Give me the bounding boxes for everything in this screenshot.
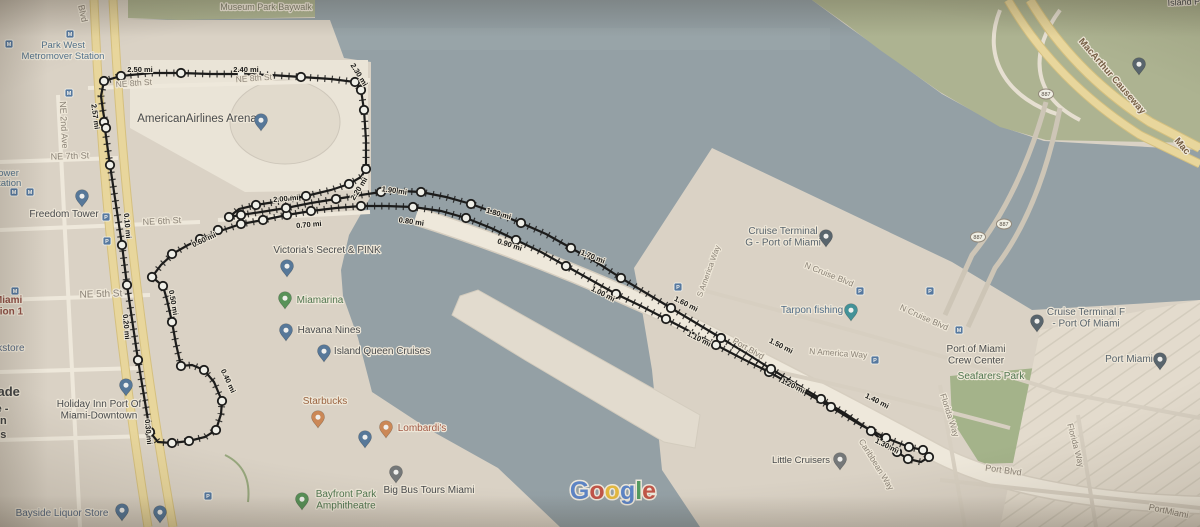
route-waypoint [123, 281, 131, 289]
route-waypoint [867, 427, 875, 435]
route-waypoint [332, 195, 340, 203]
route-waypoint [817, 395, 825, 403]
metromover-station-icon: M [11, 287, 19, 295]
route-waypoint [517, 219, 525, 227]
parking-icon-glyph: P [928, 289, 932, 295]
street-label: NE 6th St [142, 215, 181, 227]
route-waypoint [467, 200, 475, 208]
tarpon-fishing-pin-dot [849, 308, 854, 313]
route-waypoint [225, 213, 233, 221]
route-waypoint [252, 201, 260, 209]
place-label: Cruise TerminalG - Port of Miami [745, 226, 821, 249]
bayside-liquor-pin-dot [120, 508, 125, 513]
place-label: Big Bus Tours Miami [384, 485, 475, 496]
place-label: us [0, 429, 6, 441]
map-canvas[interactable]: MMMMMMPPPPPPPM 887887887 Museum Park Bay… [0, 0, 1200, 527]
route-waypoint [302, 192, 310, 200]
crew-center-transit-icon: M [955, 326, 963, 334]
route-waypoint [159, 282, 167, 290]
parking-icon: P [204, 492, 212, 500]
route-waypoint [148, 273, 156, 281]
metromover-station-icon-glyph: M [12, 190, 17, 196]
route-waypoint [218, 397, 226, 405]
metromover-station-icon-glyph: M [28, 190, 33, 196]
parking-icon: P [926, 287, 934, 295]
route-waypoint [904, 455, 912, 463]
route-waypoint [118, 241, 126, 249]
poi-pin-dot [363, 435, 368, 440]
route-shield-887: 887 [997, 219, 1012, 229]
place-label: Freedom Tower [29, 209, 99, 220]
parking-icon-glyph: P [676, 285, 680, 291]
parking-icon-glyph: P [104, 215, 108, 221]
route-waypoint [297, 73, 305, 81]
route-waypoint [214, 226, 222, 234]
route-waypoint [662, 315, 670, 323]
metromover-station-icon: M [26, 188, 34, 196]
place-label: Lombardi's [398, 423, 447, 434]
shield-number: 887 [973, 235, 982, 241]
route-waypoint [905, 443, 913, 451]
route-waypoint [237, 211, 245, 219]
route-waypoint [409, 203, 417, 211]
route-waypoint [667, 304, 675, 312]
metromover-station-icon: M [66, 30, 74, 38]
crew-center-transit-icon-glyph: M [957, 328, 962, 334]
route-waypoint [259, 216, 267, 224]
freedom-tower-museum-pin-dot [80, 194, 85, 199]
route-waypoint [200, 366, 208, 374]
route-waypoint [212, 426, 220, 434]
place-label: AmericanAirlines Arena [137, 113, 257, 125]
route-waypoint [168, 250, 176, 258]
cruise-terminal-g-pin-dot [824, 234, 829, 239]
place-label: Dade [0, 384, 20, 399]
place-label: Bayfront ParkAmphitheatre [316, 489, 378, 512]
route-waypoint [134, 356, 142, 364]
route-waypoint [177, 69, 185, 77]
metromover-station-icon: M [10, 188, 18, 196]
place-label: Bayside Liquor Store [16, 508, 109, 519]
route-waypoint [767, 365, 775, 373]
mile-marker-label: 2.40 mi [233, 65, 258, 74]
place-label: Port of MiamiCrew Center [947, 344, 1006, 367]
photo-glare [330, 28, 830, 50]
place-label: Holiday Inn Port OfMiami-Downtown [57, 399, 142, 422]
map-drawing: MMMMMMPPPPPPPM 887887887 Museum Park Bay… [0, 0, 1200, 527]
route-waypoint [282, 204, 290, 212]
route-waypoint [237, 220, 245, 228]
bayfront-park-pin-dot [300, 497, 305, 502]
route-waypoint [925, 453, 933, 461]
metromover-station-icon: M [5, 40, 13, 48]
havana-nines-pin-dot [284, 328, 289, 333]
cruise-terminal-f-pin-dot [1035, 319, 1040, 324]
shield-number: 887 [1041, 92, 1050, 98]
place-label: Havana Nines [298, 325, 361, 336]
route-waypoint [102, 124, 110, 132]
place-label: e - [0, 403, 9, 415]
street-label: NE 7th St [50, 150, 89, 161]
place-label: of MiamiStation 1 [0, 295, 24, 318]
street-label: NE 5th St [79, 288, 122, 300]
place-label: Tarpon fishing [781, 305, 843, 316]
place-label: Cruise Terminal F- Port Of Miami [1047, 307, 1125, 330]
parking-icon-glyph: P [206, 494, 210, 500]
map-photo: MMMMMMPPPPPPPM 887887887 Museum Park Bay… [0, 0, 1200, 527]
big-bus-tours-pin-dot [394, 470, 399, 475]
miamarina-pin-dot [283, 296, 288, 301]
bayside-liquor-pin-2-dot [158, 510, 163, 515]
place-label: Starbucks [303, 396, 347, 407]
island-poi-pin-dot [1137, 62, 1142, 67]
shield-number: 887 [999, 222, 1008, 228]
route-waypoint [362, 165, 370, 173]
place-label: Bookstore [0, 343, 25, 354]
route-waypoint [462, 214, 470, 222]
route-waypoint [307, 207, 315, 215]
place-label: Seafarers Park [958, 371, 1026, 382]
lombardis-pin-dot [384, 425, 389, 430]
google-logo: Google [570, 477, 656, 505]
place-label: er Station [0, 178, 21, 189]
parking-icon: P [871, 356, 879, 364]
mile-marker-label: 2.50 mi [127, 65, 152, 74]
parking-icon: P [103, 237, 111, 245]
metromover-station-icon: M [65, 89, 73, 97]
route-waypoint [357, 86, 365, 94]
route-waypoint [357, 202, 365, 210]
route-waypoint [168, 318, 176, 326]
parking-icon: P [674, 283, 682, 291]
place-label: on [0, 415, 7, 427]
metromover-station-icon-glyph: M [7, 42, 12, 48]
route-waypoint [562, 262, 570, 270]
place-label: Little Cruisers [772, 455, 830, 466]
route-waypoint [345, 180, 353, 188]
starbucks-pin-dot [316, 415, 321, 420]
route-waypoint [417, 188, 425, 196]
island-queen-cruises-pin-dot [322, 349, 327, 354]
parking-icon-glyph: P [105, 239, 109, 245]
place-label: Island Queen Cruises [334, 346, 430, 357]
route-waypoint [567, 244, 575, 252]
little-cruisers-pin-dot [838, 457, 843, 462]
street-label: Museum Park Baywalk [220, 2, 312, 12]
metromover-station-icon-glyph: M [68, 32, 73, 38]
parking-icon: P [856, 287, 864, 295]
route-waypoint [106, 161, 114, 169]
route-waypoint [717, 334, 725, 342]
place-label: Port Miami [1105, 354, 1153, 365]
victorias-secret-pin-dot [285, 264, 290, 269]
route-waypoint [185, 437, 193, 445]
route-waypoint [177, 362, 185, 370]
americanairlines-arena-pin-dot [259, 118, 264, 123]
metromover-station-icon-glyph: M [67, 91, 72, 97]
route-waypoint [617, 274, 625, 282]
route-waypoint [168, 439, 176, 447]
route-shield-887: 887 [971, 232, 986, 242]
port-miami-pin-dot [1158, 357, 1163, 362]
parking-icon-glyph: P [873, 358, 877, 364]
route-waypoint [360, 106, 368, 114]
holiday-inn-pin-dot [124, 383, 129, 388]
route-waypoint [100, 77, 108, 85]
parking-icon: P [102, 213, 110, 221]
google-logo-text: Google [570, 477, 656, 505]
parking-icon-glyph: P [858, 289, 862, 295]
place-label: Miamarina [297, 295, 344, 306]
route-waypoint [827, 403, 835, 411]
route-shield-887: 887 [1039, 89, 1054, 99]
place-label: Victoria's Secret & PINK [273, 245, 381, 256]
